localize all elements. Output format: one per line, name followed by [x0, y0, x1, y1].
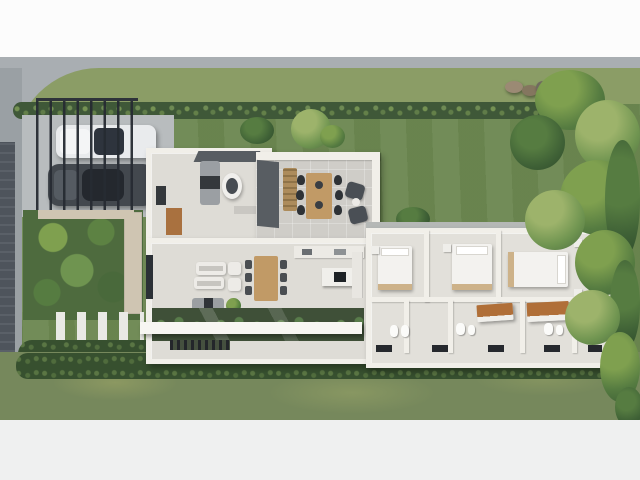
- render-area: [0, 57, 640, 420]
- screenshot-canvas: [0, 0, 640, 480]
- nightstand: [443, 244, 451, 252]
- wall-divider: [496, 230, 501, 302]
- entry-wood-door: [166, 208, 182, 235]
- tree: [320, 125, 345, 148]
- outdoor-chair: [334, 205, 342, 215]
- terrace-beam-top: [256, 152, 380, 160]
- wall-divider: [448, 300, 453, 353]
- sofa-cushion: [199, 266, 223, 271]
- bed-base: [452, 284, 492, 290]
- shower-mat: [488, 345, 504, 352]
- side-window: [146, 255, 153, 299]
- guest-daybed: [200, 161, 220, 205]
- shrub: [240, 117, 274, 144]
- dining-chair: [245, 273, 252, 282]
- white-sofa: [194, 277, 224, 289]
- dining-chair: [280, 286, 287, 295]
- bottom-margin: [0, 420, 640, 480]
- appliance: [334, 249, 346, 255]
- throw-blanket: [200, 176, 220, 189]
- tree: [615, 387, 640, 420]
- toilet: [456, 323, 465, 335]
- pergola-slats: [36, 98, 138, 219]
- outdoor-chair: [296, 190, 304, 200]
- pillows: [381, 248, 409, 256]
- dark-paver-strip: [0, 142, 15, 352]
- shower-mat: [376, 345, 392, 352]
- appliance: [302, 249, 312, 255]
- tall-cabinets: [352, 252, 363, 298]
- outdoor-chair: [335, 190, 343, 200]
- table-setting: [315, 181, 323, 189]
- egg-chair: [222, 173, 242, 199]
- outdoor-chair: [334, 175, 342, 185]
- tree-cluster-right: [505, 60, 640, 360]
- terrace-roof-slope: [257, 160, 279, 228]
- outdoor-chair: [297, 175, 305, 185]
- toilet: [390, 325, 398, 337]
- armchair: [228, 262, 241, 275]
- bed-2: [452, 244, 492, 290]
- entry-canopy-beam: [140, 322, 362, 334]
- table-setting: [315, 201, 323, 209]
- cooktop: [334, 272, 346, 282]
- wall-divider: [424, 230, 429, 302]
- outdoor-dining-table: [306, 173, 332, 219]
- gravel-path-vertical: [124, 212, 142, 314]
- top-margin: [0, 0, 640, 57]
- nightstand: [371, 246, 379, 254]
- pillows: [456, 246, 488, 255]
- dining-chair: [280, 273, 287, 282]
- bed-base: [378, 284, 412, 290]
- entry-mat: [156, 186, 166, 205]
- sink: [401, 325, 409, 337]
- dining-chair: [245, 286, 252, 295]
- shower-mat: [432, 345, 448, 352]
- dining-chair: [245, 260, 252, 269]
- armchair: [228, 278, 241, 291]
- white-sofa: [196, 262, 226, 275]
- dining-table: [254, 256, 278, 301]
- tree: [510, 115, 565, 170]
- outdoor-chair: [297, 205, 305, 215]
- sink: [468, 325, 475, 335]
- terrace-slat-bench: [283, 168, 297, 211]
- egg-chair-seat: [226, 178, 238, 194]
- tree: [525, 190, 585, 250]
- sofa-cushion: [197, 281, 221, 286]
- side-table: [352, 198, 360, 206]
- dining-chair: [280, 260, 287, 269]
- gravel-path-horizontal: [38, 210, 134, 219]
- bed-1: [378, 246, 412, 290]
- deck-grate: [170, 340, 230, 350]
